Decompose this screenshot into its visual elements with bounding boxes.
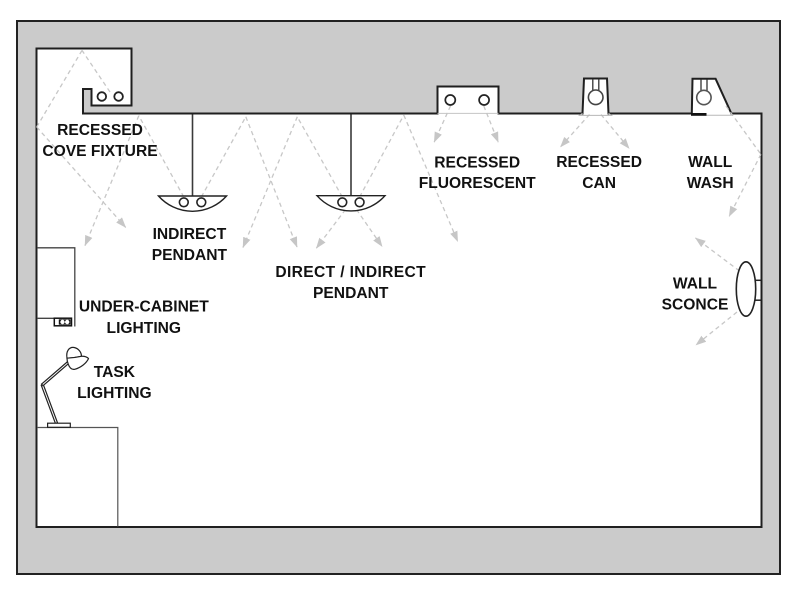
svg-text:RECESSED: RECESSED [556, 154, 642, 171]
svg-text:CAN: CAN [582, 175, 616, 192]
svg-text:LIGHTING: LIGHTING [77, 385, 152, 402]
svg-text:SCONCE: SCONCE [662, 297, 729, 314]
svg-text:TASK: TASK [94, 364, 136, 381]
svg-text:PENDANT: PENDANT [152, 247, 228, 264]
svg-text:COVE FIXTURE: COVE FIXTURE [42, 143, 157, 160]
svg-text:FLUORESCENT: FLUORESCENT [419, 175, 536, 192]
svg-text:WASH: WASH [687, 175, 734, 192]
svg-text:UNDER-CABINET: UNDER-CABINET [79, 299, 209, 316]
svg-text:DIRECT / INDIRECT: DIRECT / INDIRECT [275, 264, 426, 281]
svg-text:RECESSED: RECESSED [57, 122, 143, 139]
svg-text:WALL: WALL [673, 275, 718, 292]
svg-text:INDIRECT: INDIRECT [153, 226, 227, 243]
svg-text:LIGHTING: LIGHTING [107, 320, 182, 337]
svg-text:RECESSED: RECESSED [434, 155, 520, 172]
svg-text:PENDANT: PENDANT [313, 285, 389, 302]
svg-text:WALL: WALL [688, 154, 733, 171]
